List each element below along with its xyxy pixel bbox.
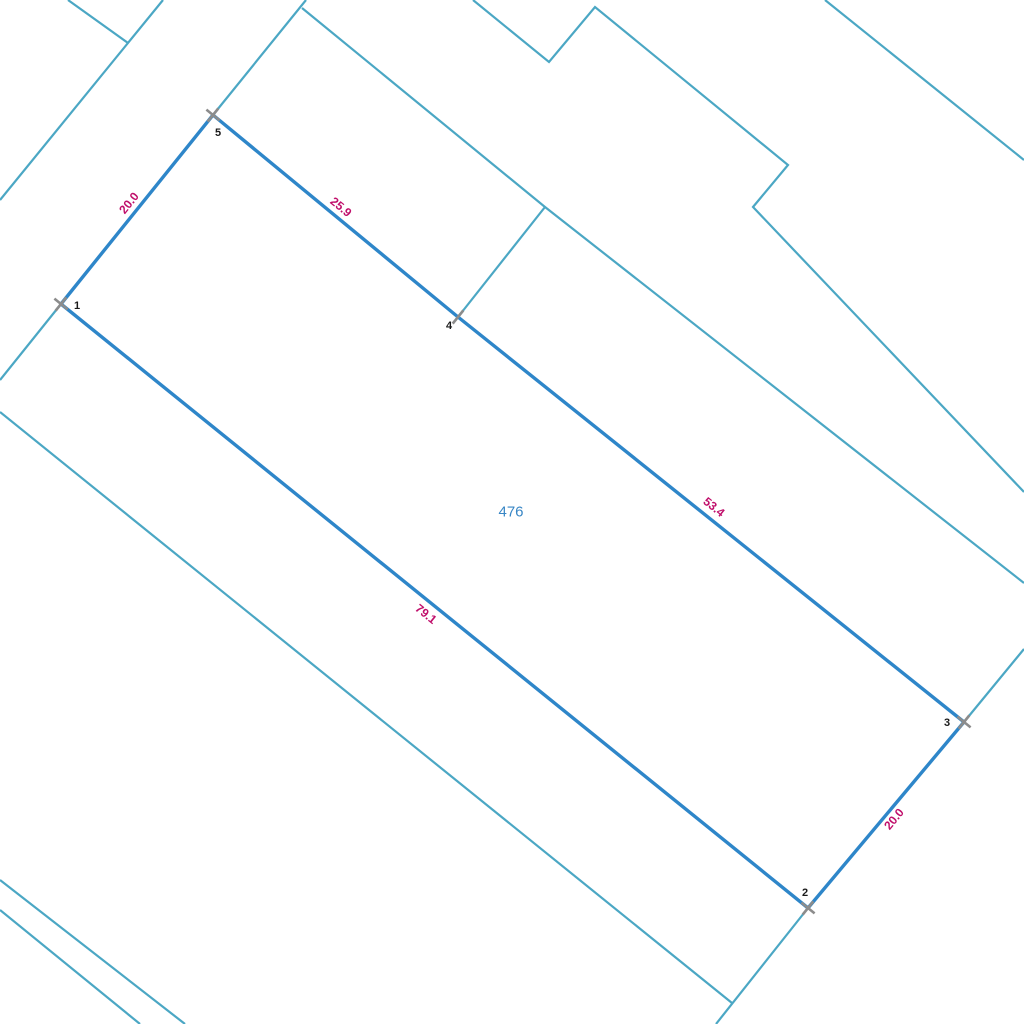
bottom-left-line-b-boundary-line xyxy=(0,910,140,1024)
parcel-number-label: 476 xyxy=(498,504,523,521)
vertex-number-2: 2 xyxy=(802,887,808,899)
southwest-parallel-line-boundary-line xyxy=(0,412,732,1003)
vertex2-extension-south-boundary-line xyxy=(716,908,808,1024)
top-right-diagonal-boundary-line xyxy=(825,0,1024,160)
cadastral-map-viewport[interactable]: 1543220.025.953.420.079.1476 xyxy=(0,0,1024,1024)
top-left-diagonal-boundary-line xyxy=(0,0,163,200)
vertex-number-3: 3 xyxy=(944,717,950,729)
edge-length-label-3-2: 20.0 xyxy=(881,805,907,832)
mid-parallel-line-boundary-line xyxy=(302,8,1024,583)
edge-length-label-1-5: 20.0 xyxy=(116,189,142,216)
bottom-left-line-a-boundary-line xyxy=(0,880,185,1024)
vertex4-branch-boundary-line xyxy=(458,207,545,317)
vertex-number-1: 1 xyxy=(74,300,80,312)
edge-length-label-5-4: 25.9 xyxy=(328,194,355,220)
vertex-number-5: 5 xyxy=(215,127,221,139)
vertex5-extension-north-boundary-line xyxy=(213,0,306,115)
vertex1-extension-south-boundary-line xyxy=(0,304,61,380)
vertex3-extension-east-boundary-line xyxy=(964,649,1024,722)
top-left-stub-boundary-line xyxy=(68,0,128,43)
north-zigzag-boundary-line xyxy=(473,0,1024,492)
cadastral-map-canvas[interactable]: 1543220.025.953.420.079.1476 xyxy=(0,0,1024,1024)
vertex-number-4: 4 xyxy=(446,320,453,332)
